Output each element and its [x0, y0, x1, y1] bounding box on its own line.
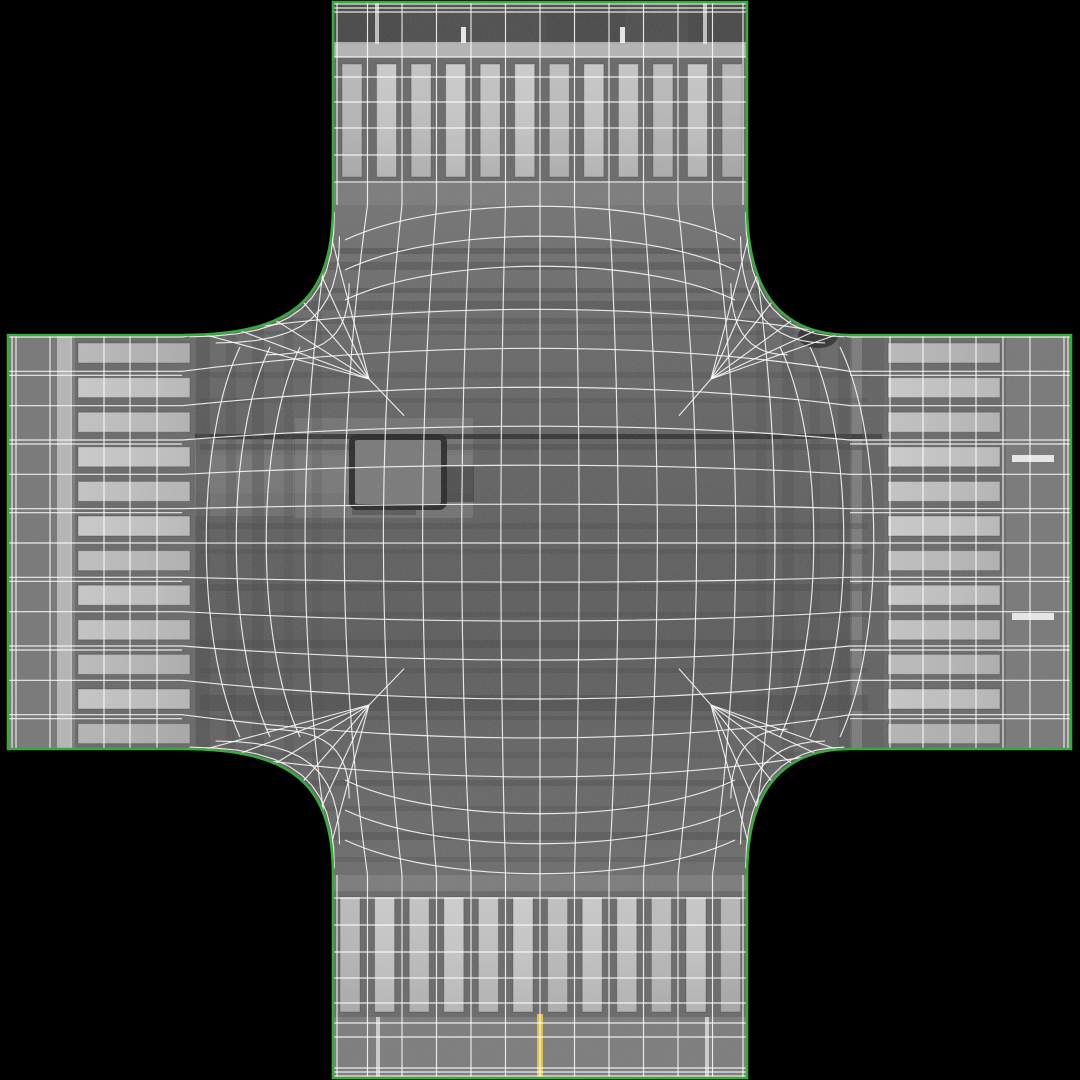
crosswalk-stripe	[340, 897, 360, 1012]
crosswalk-stripe	[78, 620, 190, 640]
asphalt-band	[756, 240, 766, 840]
crosswalk-stripe	[888, 724, 1000, 744]
crosswalk-stripe	[617, 897, 637, 1012]
crosswalk-stripe	[888, 343, 1000, 363]
asphalt-patch	[352, 437, 444, 507]
asphalt-streak	[200, 398, 868, 403]
crosswalk-stripe	[888, 447, 1000, 467]
asphalt-band	[312, 240, 322, 840]
lane-dash	[1012, 455, 1054, 462]
crosswalk-stripe	[409, 897, 429, 1012]
stop-bar-left	[57, 335, 70, 749]
crosswalk-stripe	[78, 481, 190, 501]
crosswalk-stripe	[888, 551, 1000, 571]
render-viewport	[0, 0, 1080, 1080]
crosswalk-stripe	[480, 64, 500, 177]
crosswalk-stripe	[78, 412, 190, 432]
asphalt-streak	[200, 549, 868, 554]
crosswalk-stripe	[342, 64, 362, 177]
crosswalk-stripe	[444, 897, 464, 1012]
lane-dash	[620, 27, 625, 43]
crosswalk-stripe	[515, 64, 535, 177]
crosswalk-stripe	[513, 897, 533, 1012]
dark-blob	[444, 466, 474, 502]
crosswalk-stripe	[721, 897, 741, 1012]
crosswalk-stripe	[78, 585, 190, 605]
lane-dash	[1012, 613, 1054, 620]
crosswalk-stripe	[411, 64, 431, 177]
crosswalk-stripe	[888, 585, 1000, 605]
asphalt-streak	[200, 716, 868, 720]
asphalt-streak	[200, 584, 868, 591]
lane-line	[376, 1017, 380, 1078]
crosswalk-stripe	[618, 64, 638, 177]
asphalt-streak	[200, 523, 868, 529]
crosswalk-stripe	[688, 64, 708, 177]
lane-dash	[461, 27, 466, 43]
crosswalk-stripe	[78, 689, 190, 709]
crosswalk-stripe	[888, 516, 1000, 536]
crosswalk-stripe	[651, 897, 671, 1012]
crosswalk-stripe	[888, 412, 1000, 432]
asphalt-streak	[200, 331, 868, 335]
asphalt-streak	[200, 640, 868, 648]
crosswalk-stripe	[549, 64, 569, 177]
crosswalk-stripe	[375, 897, 395, 1012]
crosswalk-stripe	[446, 64, 466, 177]
crosswalk-stripe	[478, 897, 498, 1012]
crosswalk-stripe	[888, 481, 1000, 501]
crosswalk-stripe	[78, 724, 190, 744]
crosswalk-stripe	[888, 654, 1000, 674]
lane-line	[705, 1017, 709, 1078]
right-exit-shade	[1006, 335, 1071, 749]
crosswalk-stripe	[548, 897, 568, 1012]
crosswalk-stripe	[888, 620, 1000, 640]
crosswalk-stripe	[78, 378, 190, 398]
crosswalk-stripe	[888, 689, 1000, 709]
crosswalk-stripe	[653, 64, 673, 177]
crosswalk-stripe	[78, 654, 190, 674]
crosswalk-stripe	[686, 897, 706, 1012]
crosswalk-stripe	[584, 64, 604, 177]
crosswalk-stripe	[888, 378, 1000, 398]
crosswalk-stripe	[78, 343, 190, 363]
asphalt-streak	[200, 444, 868, 450]
crosswalk-stripe	[722, 64, 742, 177]
crosswalk-stripe	[78, 551, 190, 571]
crosswalk-stripe	[377, 64, 397, 177]
crosswalk-stripe	[78, 516, 190, 536]
crosswalk-stripe	[78, 447, 190, 467]
asphalt-streak	[200, 668, 868, 673]
intersection-wireframe-render	[0, 0, 1080, 1080]
crosswalk-stripe	[582, 897, 602, 1012]
